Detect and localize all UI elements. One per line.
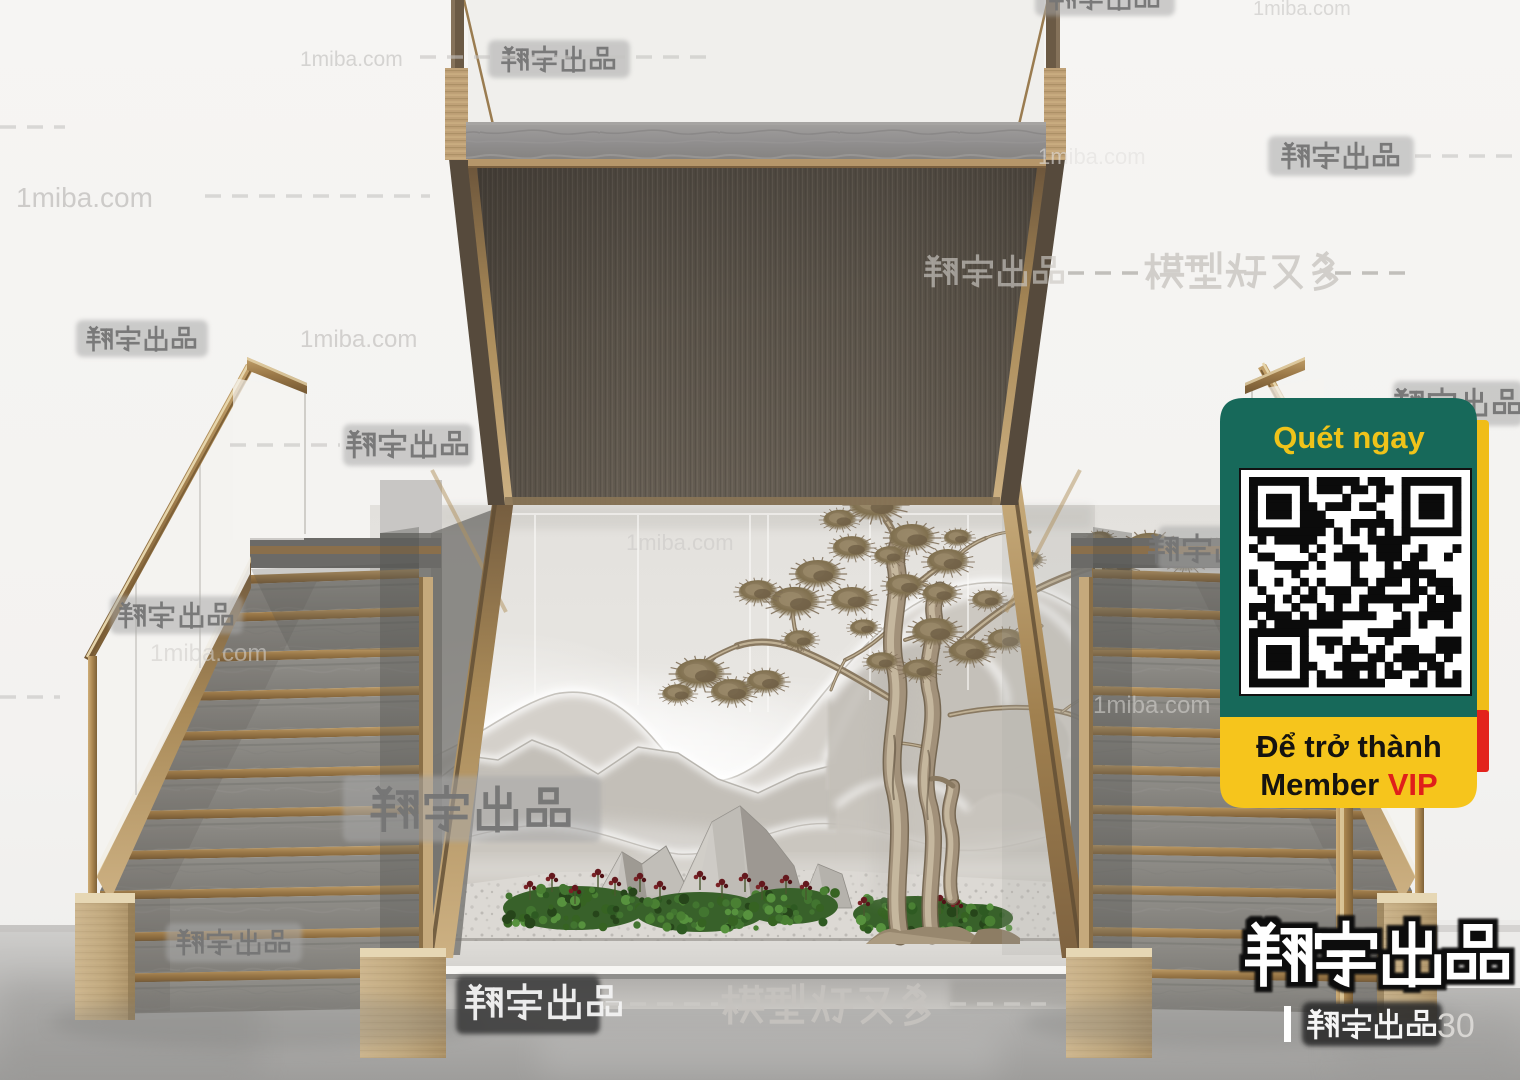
svg-text:Member VIP: Member VIP xyxy=(1260,767,1437,802)
svg-text:1miba.com: 1miba.com xyxy=(150,640,267,667)
svg-text:Quét ngay: Quét ngay xyxy=(1273,420,1425,455)
svg-text:Để trở thành: Để trở thành xyxy=(1256,729,1442,764)
svg-text:1miba.com: 1miba.com xyxy=(1093,692,1210,719)
svg-text:1miba.com: 1miba.com xyxy=(1253,0,1351,20)
svg-text:1miba.com: 1miba.com xyxy=(626,530,734,555)
svg-text:1miba.com: 1miba.com xyxy=(300,326,417,353)
svg-text:1miba.com: 1miba.com xyxy=(1038,144,1146,169)
svg-text:1miba.com: 1miba.com xyxy=(16,182,153,213)
svg-text:1miba.com: 1miba.com xyxy=(300,48,403,71)
svg-text:30: 30 xyxy=(1437,1007,1475,1045)
